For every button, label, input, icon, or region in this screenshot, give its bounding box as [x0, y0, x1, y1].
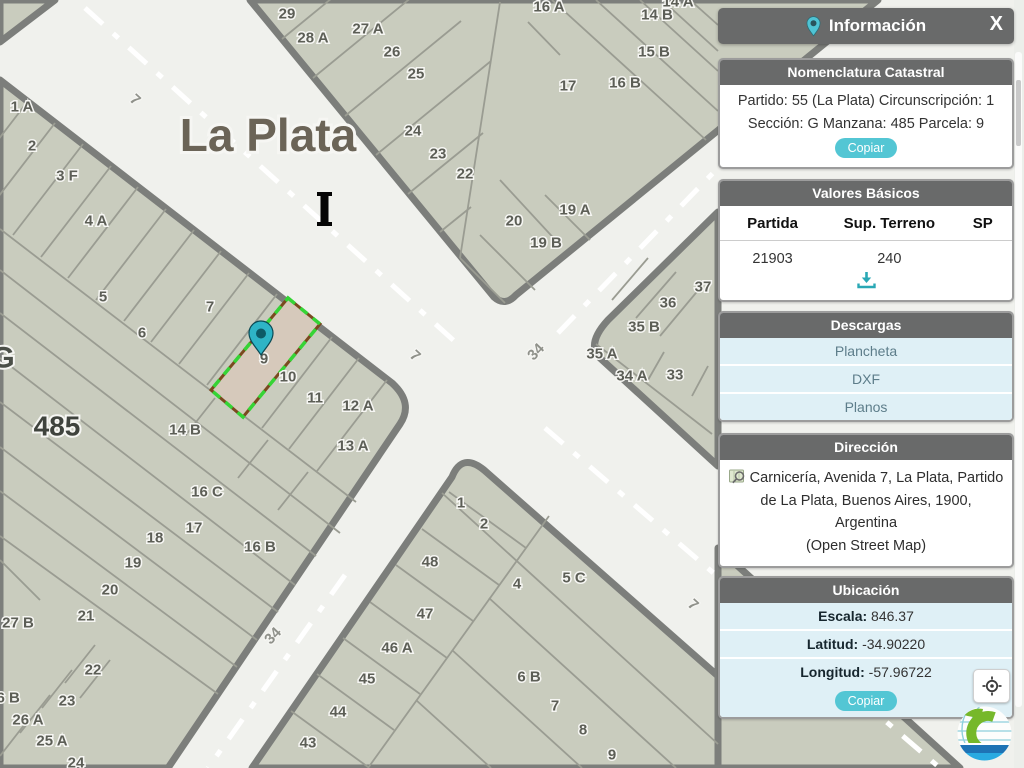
panel-header: Información X [718, 8, 1014, 44]
parcel-label: 6 B [517, 669, 541, 686]
street-label: 34 [524, 340, 548, 364]
direccion-line1: Carnicería, Avenida 7, La Plata, Partido [750, 470, 1004, 486]
nomenclatura-line2: Sección: G Manzana: 485 Parcela: 9 [726, 113, 1006, 136]
parcel-label: 3 F [56, 168, 78, 185]
right-edge-strip [1014, 0, 1024, 768]
street-label: 7 [684, 596, 702, 614]
section-nomenclatura: Nomenclatura Catastral Partido: 55 (La P… [718, 58, 1014, 169]
valores-value [954, 251, 1012, 267]
parcel-label: 27 B [2, 615, 34, 632]
carto-globe-logo[interactable] [956, 705, 1013, 762]
direccion-line2: de La Plata, Buenos Aires, 1900, Argenti… [728, 490, 1004, 535]
parcel-label: 15 B [638, 44, 670, 61]
valores-table-row: 21903240 [720, 241, 1012, 269]
parcel-label: 26 B [0, 690, 20, 707]
panel-title: Información [829, 16, 926, 36]
city-label: La Plata [180, 109, 357, 161]
street-label: 7 [126, 91, 144, 109]
section-descargas-title: Descargas [720, 313, 1012, 338]
section-valores-title: Valores Básicos [720, 181, 1012, 206]
section-label: G [0, 342, 15, 375]
parcel-label: 14 B [169, 422, 201, 439]
section-descargas: Descargas PlanchetaDXFPlanos [718, 311, 1014, 422]
parcel-label: 19 A [559, 202, 590, 219]
parcel-label: 19 [125, 555, 142, 572]
block-label: 485 [34, 411, 81, 442]
parcel-label: 24 [405, 123, 422, 140]
parcel-label: 16 B [609, 75, 641, 92]
parcel-label: 43 [300, 735, 317, 752]
parcel-label: 22 [457, 166, 474, 183]
parcel-label: 8 [579, 722, 587, 739]
parcel-label: 34 A [616, 368, 647, 385]
close-button[interactable]: X [990, 13, 1003, 36]
download-item[interactable]: Planos [720, 394, 1012, 420]
crosshair-icon [982, 676, 1002, 696]
parcel-label: 2 [480, 516, 488, 533]
parcel-label: 7 [206, 299, 214, 316]
copy-ubicacion-button[interactable]: Copiar [835, 691, 898, 711]
parcel-label: 11 [307, 390, 323, 407]
parcel-label: 26 A [12, 712, 43, 729]
ubicacion-row: Latitud: -34.90220 [720, 631, 1012, 657]
parcel-label: 44 [330, 704, 347, 721]
parcel-label: 19 B [530, 235, 562, 252]
parcel-label: 4 A [85, 213, 108, 230]
download-item[interactable]: Plancheta [720, 338, 1012, 364]
parcel-label: 7 [551, 698, 559, 715]
valores-table-headers: PartidaSup. TerrenoSP [720, 206, 1012, 241]
parcel-label: 14 A [662, 0, 693, 11]
scrollbar-thumb[interactable] [1016, 80, 1021, 146]
direccion-line3: (Open Street Map) [728, 535, 1004, 558]
parcel-label: 24 [68, 755, 85, 768]
parcel-label: 17 [560, 78, 577, 95]
section-direccion: Dirección Carnicería, Avenida 7, La Plat… [718, 433, 1014, 568]
copy-nomenclatura-button[interactable]: Copiar [835, 138, 898, 158]
info-panel: Información X Nomenclatura Catastral Par… [718, 8, 1014, 719]
location-pin-icon [806, 16, 821, 37]
download-icon[interactable] [857, 271, 876, 289]
parcel-label: 23 [59, 693, 76, 710]
valores-header: Partida [720, 215, 825, 232]
valores-value: 240 [825, 251, 953, 267]
parcel-label: 2 [28, 138, 36, 155]
section-valores: Valores Básicos PartidaSup. TerrenoSP 21… [718, 179, 1014, 302]
parcel-label: 1 A [11, 99, 34, 116]
parcel-label: 16 A [533, 0, 564, 16]
parcel-label: 20 [506, 213, 523, 230]
parcel-label: 35 B [628, 319, 660, 336]
parcel-label: 35 A [586, 346, 617, 363]
parcel-label: 16 B [244, 539, 276, 556]
parcel-label: 20 [102, 582, 119, 599]
parcel-label: 12 A [342, 398, 373, 415]
parcel-label: 21 [78, 608, 95, 625]
parcel-label: 4 [513, 576, 522, 593]
parcel-label: 10 [280, 369, 297, 386]
valores-header: Sup. Terreno [825, 215, 953, 232]
parcel-label: 47 [417, 606, 434, 623]
parcel-label: 25 [408, 66, 425, 83]
locate-me-button[interactable] [973, 669, 1010, 703]
parcel-label: 16 C [191, 484, 223, 501]
parcel-label: 46 A [381, 640, 412, 657]
parcel-label: 18 [147, 530, 164, 547]
parcel-label: 25 A [36, 733, 67, 750]
section-ubicacion: Ubicación Escala: 846.37Latitud: -34.902… [718, 576, 1014, 719]
city-block[interactable] [0, 0, 55, 42]
parcel-label: 26 [384, 44, 401, 61]
scrollbar-track[interactable] [1015, 52, 1022, 707]
parcel-label: 28 A [297, 30, 328, 47]
parcel-label: 37 [695, 279, 712, 296]
valores-header: SP [954, 215, 1012, 232]
parcel-label: 13 A [337, 438, 368, 455]
ubicacion-row: Longitud: -57.96722 [720, 659, 1012, 685]
section-direccion-title: Dirección [720, 435, 1012, 460]
parcel-label: 17 [186, 520, 203, 537]
street-label: 7 [406, 347, 424, 365]
parcel-label: 23 [430, 146, 447, 163]
map-search-icon [729, 469, 746, 484]
nomenclatura-line1: Partido: 55 (La Plata) Circunscripción: … [726, 90, 1006, 113]
parcel-label: 45 [359, 671, 376, 688]
section-ubicacion-title: Ubicación [720, 578, 1012, 603]
valores-value: 21903 [720, 251, 825, 267]
parcel-label: 5 [99, 289, 107, 306]
download-item[interactable]: DXF [720, 366, 1012, 392]
city-block[interactable] [595, 212, 718, 466]
ubicacion-row: Escala: 846.37 [720, 603, 1012, 629]
section-nomenclatura-title: Nomenclatura Catastral [720, 60, 1012, 85]
parcel-label: 22 [85, 662, 102, 679]
parcel-label: 5 C [562, 570, 586, 587]
parcel-label: 29 [279, 6, 296, 23]
parcel-label: 6 [138, 325, 146, 342]
parcel-label: 36 [660, 295, 677, 312]
parcel-label: 33 [667, 367, 684, 384]
parcel-label: 9 [608, 747, 616, 764]
parcel-label: 1 [457, 495, 465, 512]
parcel-label: 27 A [352, 21, 383, 38]
parcel-label: 48 [422, 554, 439, 571]
